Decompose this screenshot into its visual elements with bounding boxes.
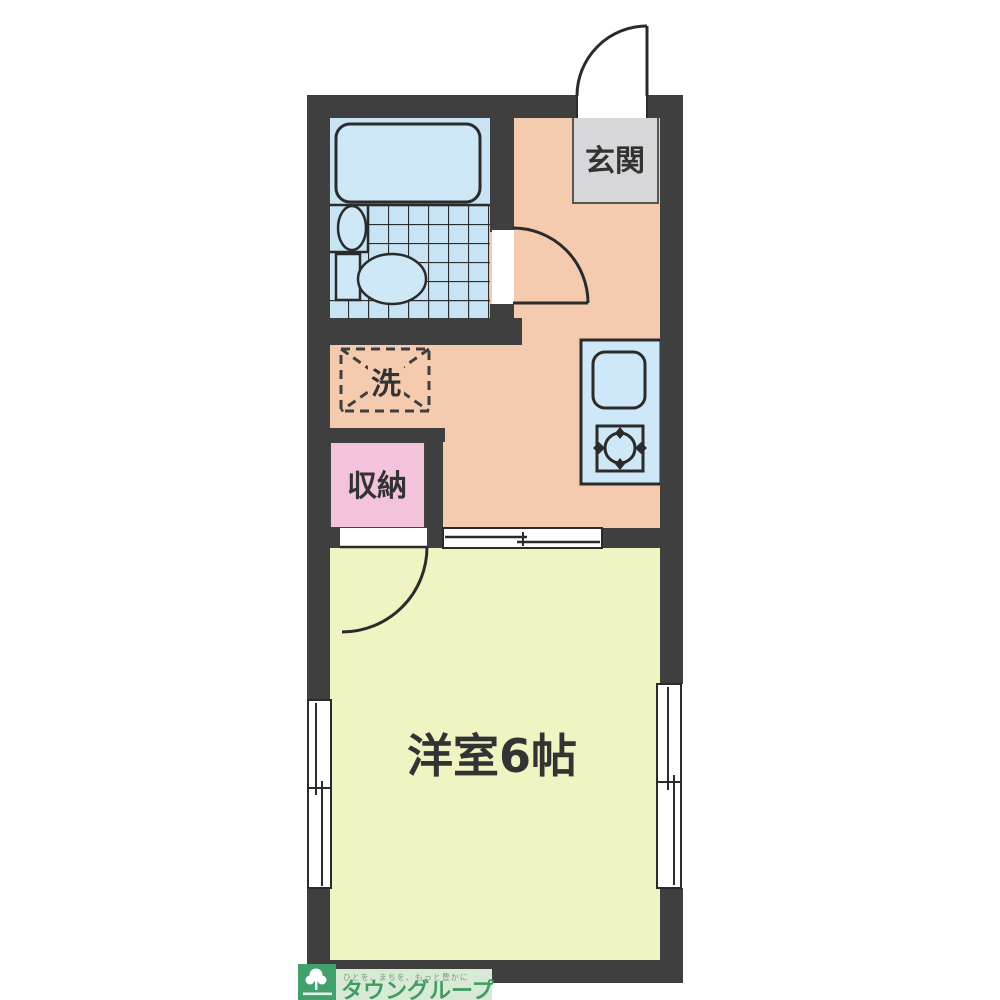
main-room-doorway-gap [340,528,427,548]
wall-storage-top [307,428,445,442]
toilet-tank-icon [336,254,360,300]
wall-right-upper [660,95,683,684]
bathroom-doorway-gap [492,230,514,304]
wall-room-boundary-left [307,528,340,548]
window-frame-icon [308,700,331,888]
floorplan-canvas: 玄関 洗 収納 [0,0,1000,1000]
wall-storage-right [425,442,443,548]
storage-area: 収納 [330,442,425,528]
kitchen-sink-icon [593,352,645,408]
window-left [308,700,331,888]
kitchen-counter [581,340,661,484]
wall-bathroom-bottom [330,318,522,345]
wall-bathroom-right [490,118,514,232]
entrance-door [577,26,647,118]
footer-logo: ひとを、まちを、もっと豊かに タウングループ [298,964,495,1000]
entrance-door-swing-icon [577,26,647,96]
main-room-label: 洋室6帖 [407,729,577,783]
logo-brand: タウングループ [341,978,495,1000]
bathtub-icon [336,124,480,202]
entrance-doorway-gap [577,95,647,118]
sliding-door [443,528,602,548]
bathroom-unit [330,118,490,318]
toilet-bowl-icon [358,254,426,304]
bath-sink-icon [338,206,366,250]
storage-label: 収納 [347,469,407,504]
wall-left-upper [307,95,330,700]
wall-top-left [307,95,577,118]
wall-room-boundary-right [600,528,683,548]
entrance-area: 玄関 [573,115,658,203]
entrance-label: 玄関 [585,144,645,179]
floorplan-svg: 玄関 洗 収納 [0,0,1000,1000]
window-right [657,684,681,888]
washer-label: 洗 [371,367,401,402]
